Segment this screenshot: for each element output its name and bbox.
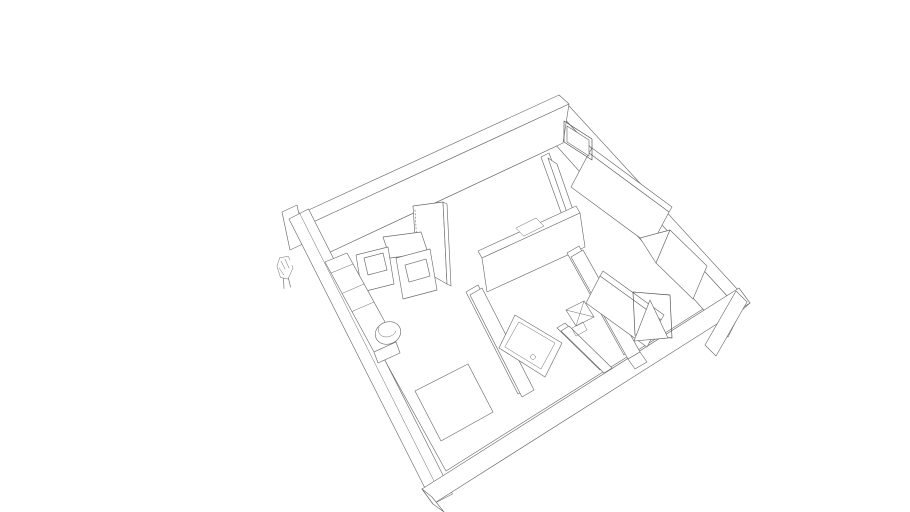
figure-face (285, 253, 288, 256)
figure-shoe-right (289, 288, 294, 290)
model-viewport (0, 0, 910, 512)
door-handle-icon (645, 316, 648, 319)
figure-hand (294, 264, 296, 266)
floorplan-3d-render (0, 0, 910, 512)
figure-shoe-left (281, 289, 286, 292)
